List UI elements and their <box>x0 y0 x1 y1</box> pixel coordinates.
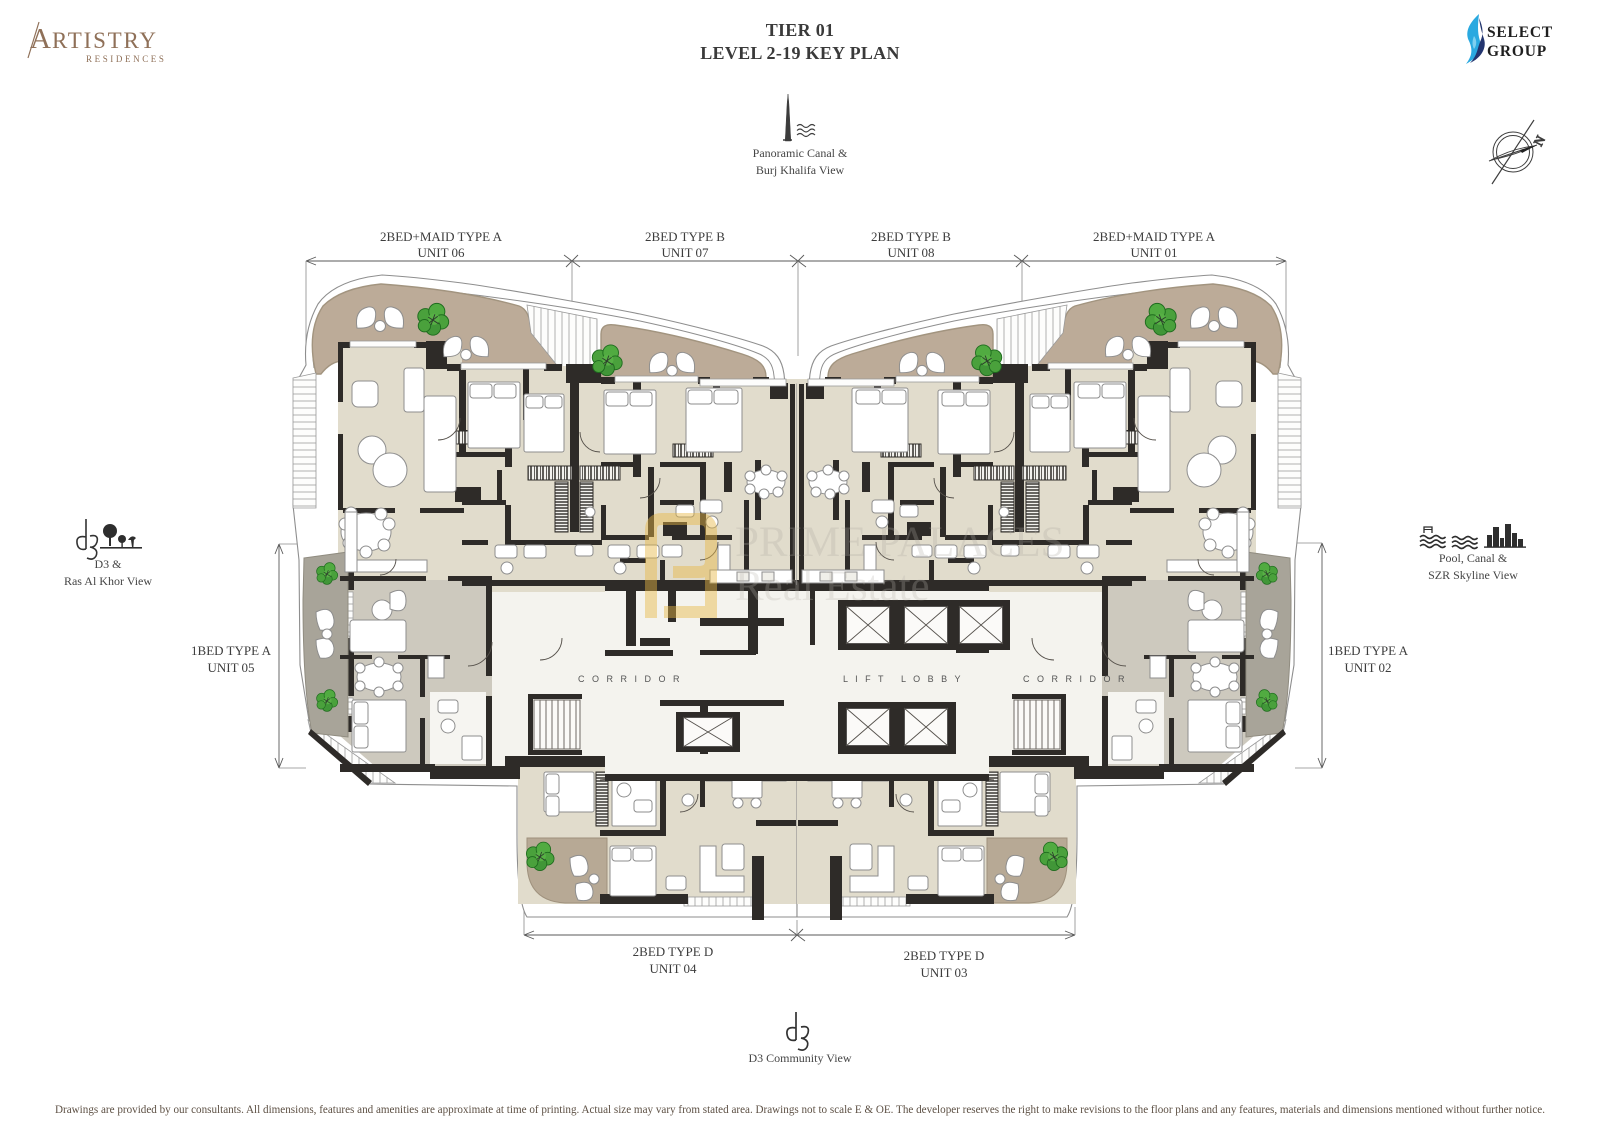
svg-text:C O R R I D O R: C O R R I D O R <box>578 674 682 684</box>
svg-text:RTISTRY: RTISTRY <box>52 28 158 53</box>
svg-text:L I F T L O B B Y: L I F T L O B B Y <box>843 674 963 684</box>
svg-text:LEVEL 2-19 KEY PLAN: LEVEL 2-19 KEY PLAN <box>700 43 900 63</box>
svg-text:UNIT 02: UNIT 02 <box>1344 660 1391 675</box>
svg-text:2BED+MAID TYPE A: 2BED+MAID TYPE A <box>1093 229 1216 244</box>
svg-text:2BED TYPE B: 2BED TYPE B <box>871 229 951 244</box>
svg-text:UNIT 07: UNIT 07 <box>661 245 709 260</box>
svg-text:Pool, Canal &: Pool, Canal & <box>1439 551 1508 565</box>
svg-text:1BED TYPE A: 1BED TYPE A <box>1328 643 1409 658</box>
svg-text:2BED TYPE D: 2BED TYPE D <box>633 944 714 959</box>
svg-text:UNIT 04: UNIT 04 <box>649 961 697 976</box>
svg-text:2BED TYPE D: 2BED TYPE D <box>904 948 985 963</box>
svg-text:GROUP: GROUP <box>1487 43 1547 60</box>
svg-text:Real Estate: Real Estate <box>735 563 930 610</box>
svg-text:UNIT 06: UNIT 06 <box>417 245 465 260</box>
svg-text:C O R R I D O R: C O R R I D O R <box>1023 674 1127 684</box>
svg-text:Drawings are provided by our c: Drawings are provided by our consultants… <box>55 1103 1545 1116</box>
svg-text:D3 Community View: D3 Community View <box>748 1051 851 1065</box>
svg-text:1BED TYPE A: 1BED TYPE A <box>191 643 272 658</box>
svg-text:RESIDENCES: RESIDENCES <box>86 54 167 64</box>
svg-text:Panoramic Canal &: Panoramic Canal & <box>753 146 848 160</box>
svg-text:UNIT 03: UNIT 03 <box>920 965 967 980</box>
svg-text:SZR Skyline View: SZR Skyline View <box>1428 568 1518 582</box>
svg-text:Burj Khalifa View: Burj Khalifa View <box>756 163 845 177</box>
svg-text:UNIT 05: UNIT 05 <box>207 660 254 675</box>
svg-text:Ras Al Khor View: Ras Al Khor View <box>64 574 152 588</box>
svg-text:2BED+MAID TYPE A: 2BED+MAID TYPE A <box>380 229 503 244</box>
svg-text:2BED TYPE B: 2BED TYPE B <box>645 229 725 244</box>
svg-text:TIER 01: TIER 01 <box>766 20 835 40</box>
svg-text:UNIT 01: UNIT 01 <box>1130 245 1177 260</box>
svg-text:UNIT 08: UNIT 08 <box>887 245 934 260</box>
svg-text:D3 &: D3 & <box>95 557 123 571</box>
svg-text:PRIME PALACES: PRIME PALACES <box>735 519 1064 566</box>
svg-text:SELECT: SELECT <box>1487 24 1553 41</box>
